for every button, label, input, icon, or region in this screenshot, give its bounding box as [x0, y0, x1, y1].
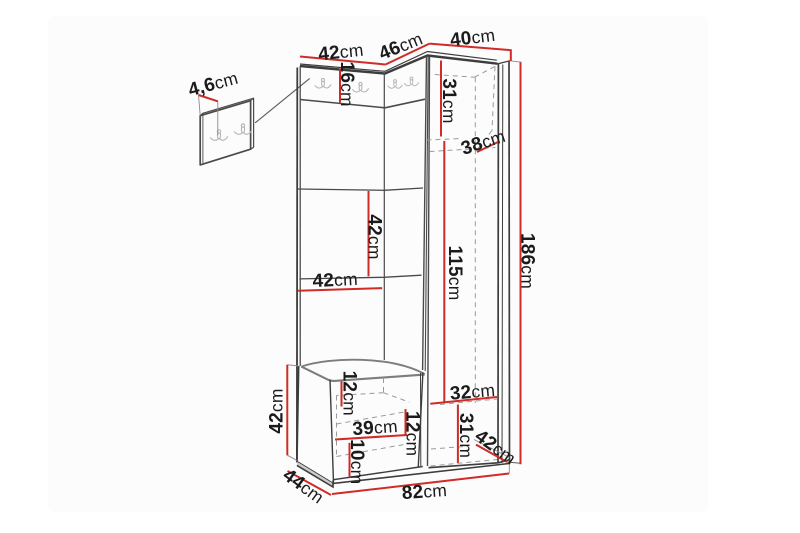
svg-text:42cm: 42cm — [312, 269, 358, 292]
svg-text:10cm: 10cm — [346, 439, 367, 484]
svg-text:42cm: 42cm — [267, 388, 288, 433]
svg-text:31cm: 31cm — [438, 78, 459, 123]
svg-text:12cm: 12cm — [402, 411, 423, 456]
svg-text:42cm: 42cm — [364, 214, 385, 259]
svg-text:186cm: 186cm — [517, 233, 538, 289]
svg-text:16cm: 16cm — [336, 62, 357, 107]
svg-text:12cm: 12cm — [339, 371, 360, 416]
svg-text:31cm: 31cm — [455, 413, 476, 458]
svg-text:115cm: 115cm — [444, 246, 465, 301]
